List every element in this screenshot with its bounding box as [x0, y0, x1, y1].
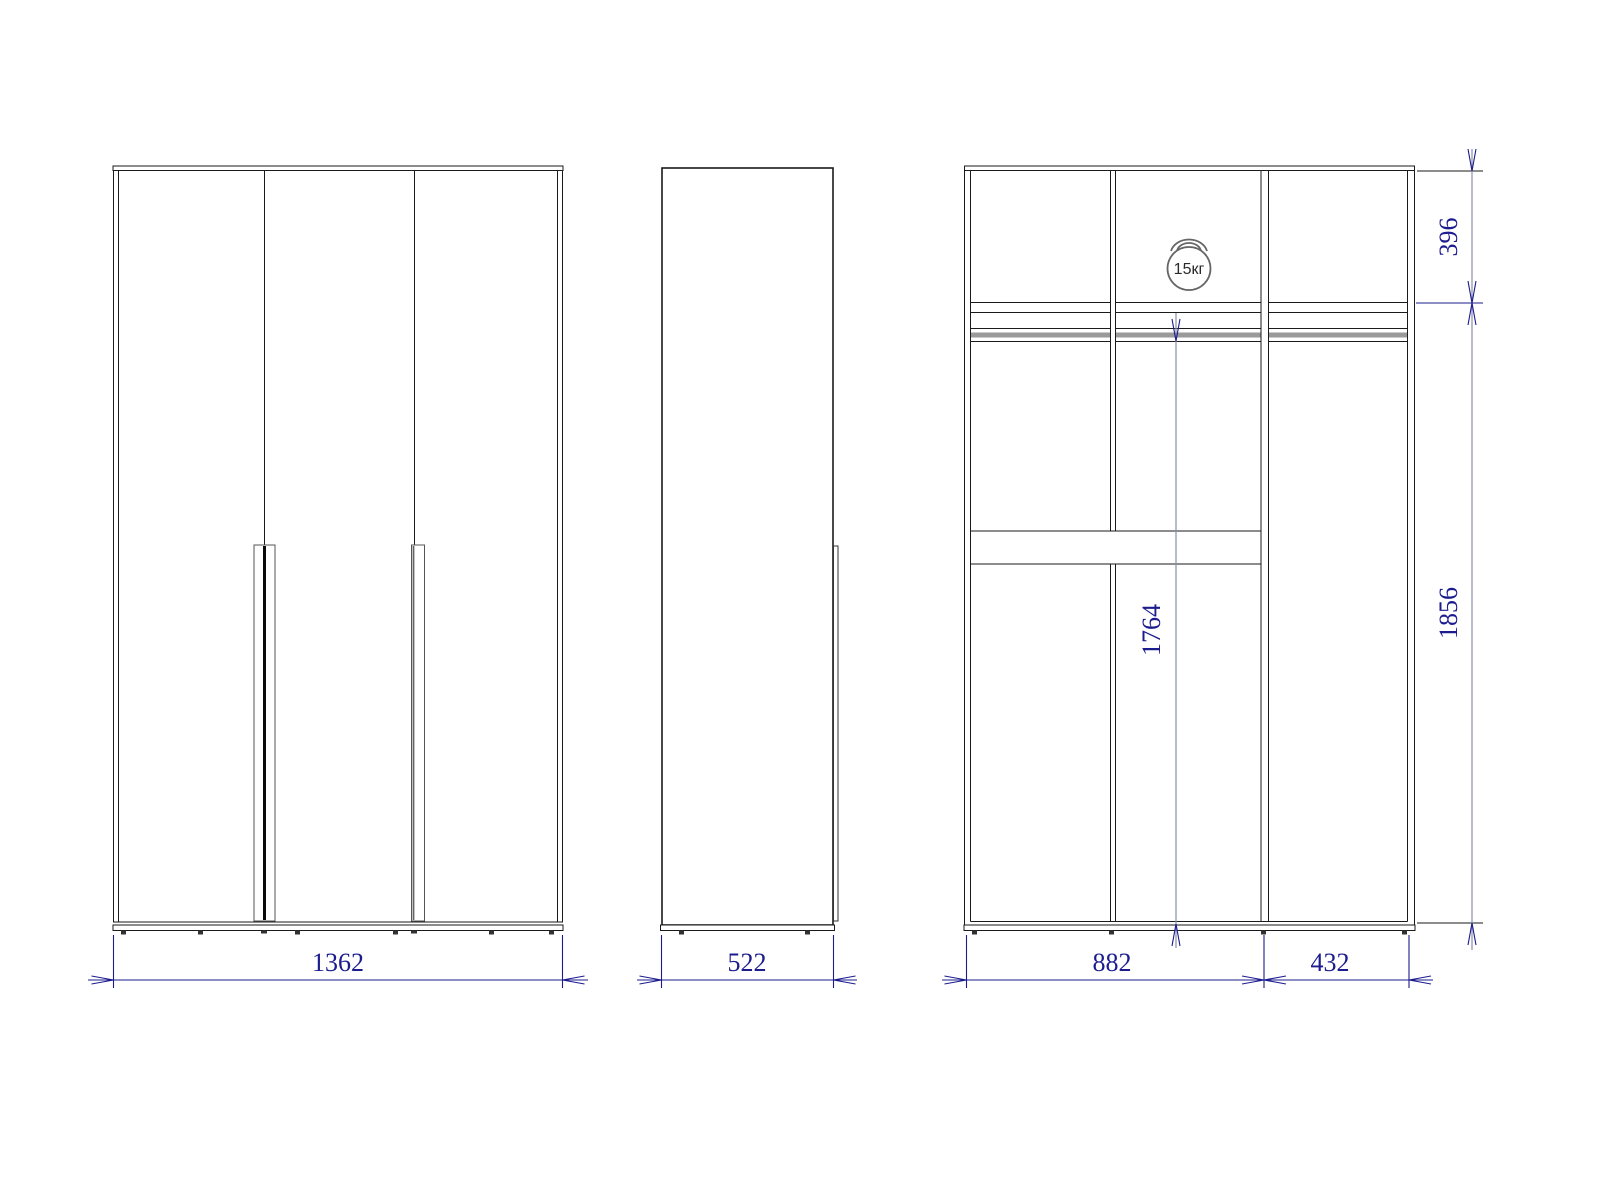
foot-mark: [805, 931, 810, 935]
side-view: [661, 168, 839, 935]
foot-mark: [121, 931, 126, 935]
foot-mark: [679, 931, 684, 935]
internal-middle-shelf: [971, 531, 1262, 564]
front-top-panel: [113, 166, 563, 171]
foot-mark: [489, 931, 494, 935]
side-outline: [662, 168, 833, 925]
dim-left-sections-width: 882: [1093, 948, 1132, 977]
foot-mark: [972, 931, 977, 935]
drawing-canvas: 15кг 1362 522: [0, 0, 1600, 1200]
front-plinth: [113, 925, 563, 931]
foot-mark: [295, 931, 300, 935]
dim-depth: 522: [728, 948, 767, 977]
foot-mark: [261, 931, 267, 934]
internal-top-panel: [965, 166, 1415, 171]
internal-partition-left: [1111, 171, 1116, 922]
side-plinth: [661, 925, 835, 931]
dim-overall-width: 1362: [312, 948, 364, 977]
foot-mark: [198, 931, 203, 935]
wardrobe-drawing: 15кг 1362 522: [0, 0, 1600, 1200]
foot-mark: [1402, 931, 1407, 935]
side-feet: [679, 931, 810, 935]
front-feet: [121, 931, 554, 935]
foot-mark: [411, 931, 417, 934]
front-right-handle: [412, 545, 425, 921]
internal-hanging-rod: [971, 329, 1408, 342]
max-load-label: 15кг: [1174, 261, 1205, 278]
dimension-annotations: 1362 522 882 432 396 1856 1764: [88, 149, 1483, 988]
foot-mark: [1261, 931, 1266, 935]
foot-mark: [1109, 931, 1114, 935]
front-carcass-outline: [114, 171, 563, 923]
front-view: [113, 166, 563, 935]
dim-hanging-space-height: 1764: [1137, 604, 1166, 656]
internal-plinth: [964, 925, 1415, 931]
internal-top-shelf: [971, 303, 1408, 313]
side-handle-profile: [834, 546, 839, 921]
foot-mark: [393, 931, 398, 935]
dim-top-shelf-height: 396: [1434, 218, 1463, 257]
front-left-handle: [254, 545, 275, 921]
dim-side-section-height: 1856: [1434, 587, 1463, 639]
foot-mark: [549, 931, 554, 935]
internal-structure-view: 15кг: [964, 166, 1415, 935]
internal-feet: [972, 931, 1407, 935]
max-load-badge: 15кг: [1168, 239, 1211, 290]
internal-partition-right: [1261, 171, 1269, 922]
dim-right-section-width: 432: [1311, 948, 1350, 977]
